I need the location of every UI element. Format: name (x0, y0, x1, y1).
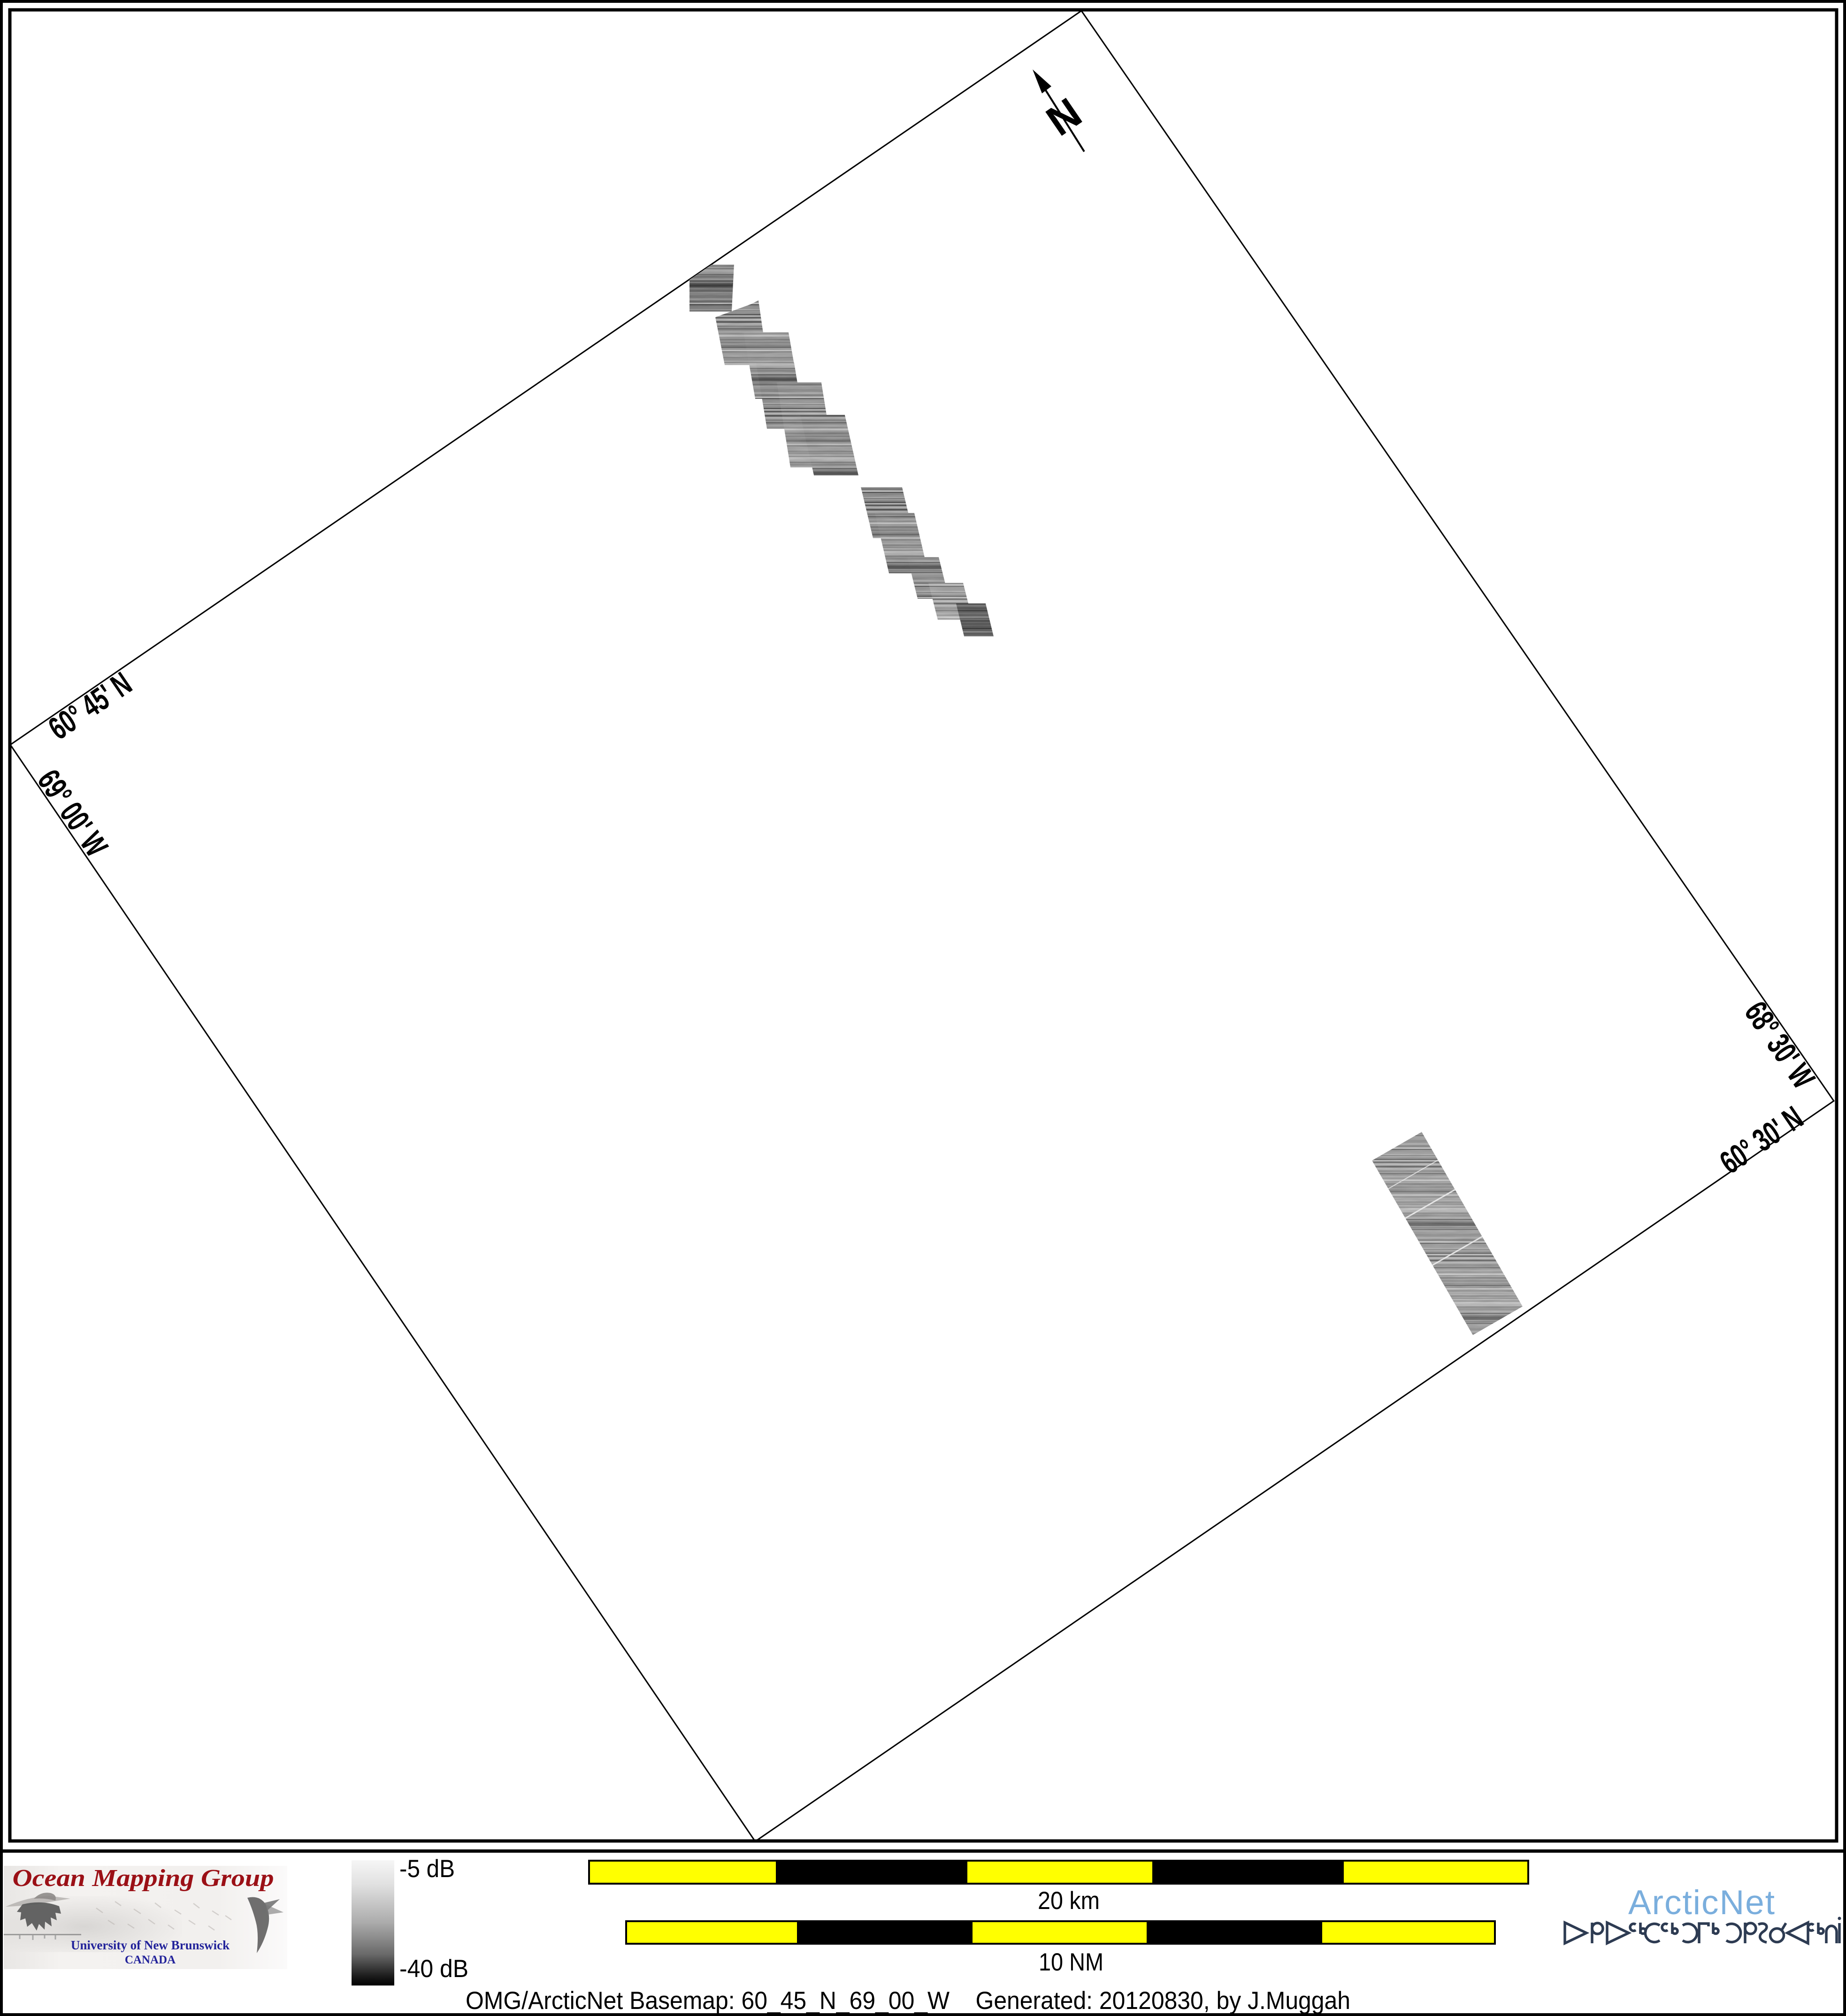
svg-text:68° 30' W: 68° 30' W (1738, 995, 1822, 1095)
svg-text:-40 dB: -40 dB (399, 1955, 468, 1983)
svg-text:20 km: 20 km (1038, 1887, 1100, 1915)
svg-text:60° 30' N: 60° 30' N (1714, 1099, 1809, 1181)
svg-text:CANADA: CANADA (125, 1954, 176, 1966)
svg-text:60° 45' N: 60° 45' N (42, 665, 138, 747)
svg-text:10 NM: 10 NM (1039, 1948, 1103, 1976)
svg-text:University of New Brunswick: University of New Brunswick (71, 1938, 230, 1952)
svg-text:ArcticNet: ArcticNet (1628, 1884, 1776, 1922)
svg-text:-5 dB: -5 dB (399, 1855, 455, 1883)
svg-text:OMG/ArcticNet Basemap: 60_45_N: OMG/ArcticNet Basemap: 60_45_N_69_00_W G… (466, 1987, 1350, 2015)
svg-text:Ocean Mapping Group: Ocean Mapping Group (13, 1865, 274, 1892)
svg-text:N: N (1038, 89, 1090, 145)
svg-text:69° 00' W: 69° 00' W (31, 764, 115, 863)
